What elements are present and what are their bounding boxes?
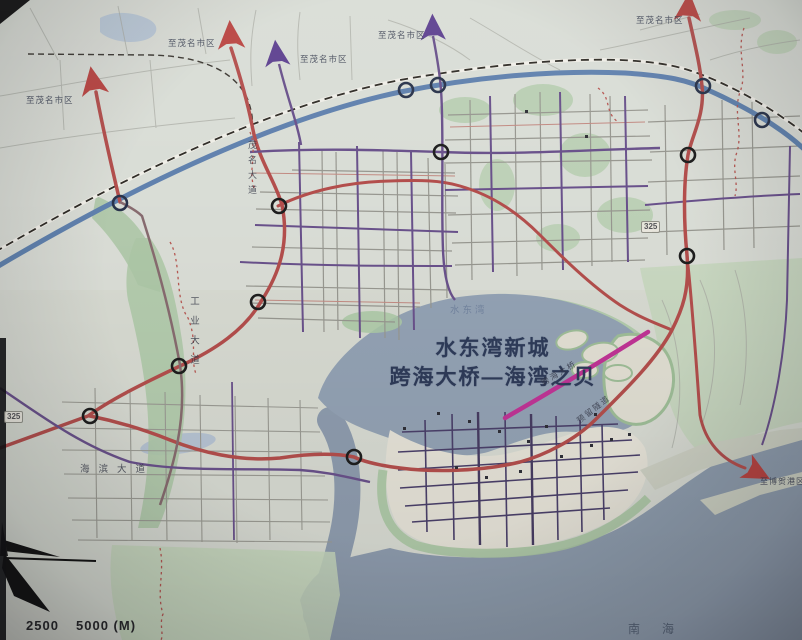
map-canvas xyxy=(0,0,802,640)
planning-map-photo: 水东湾新城 跨海大桥—海湾之贝 至茂名市区 至茂名市区 至茂名市区 至茂名市区 … xyxy=(0,0,802,640)
